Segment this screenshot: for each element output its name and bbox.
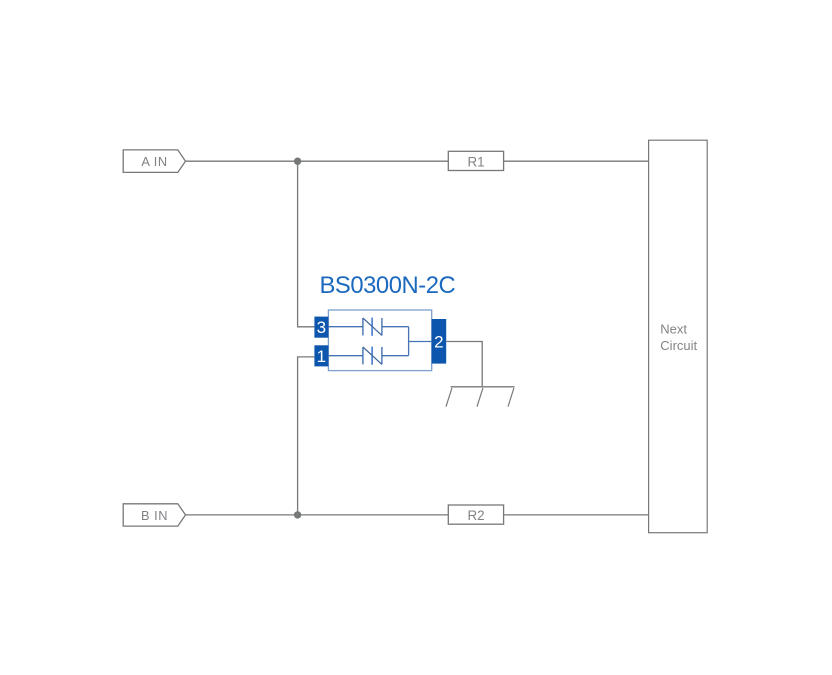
- svg-text:B IN: B IN: [141, 508, 168, 523]
- svg-text:2: 2: [434, 332, 443, 351]
- svg-text:R2: R2: [467, 508, 484, 523]
- svg-text:R1: R1: [467, 155, 484, 170]
- svg-text:1: 1: [317, 347, 326, 366]
- svg-text:3: 3: [317, 318, 326, 337]
- svg-text:Next: Next: [660, 322, 687, 337]
- svg-text:Circuit: Circuit: [660, 338, 697, 353]
- svg-text:BS0300N-2C: BS0300N-2C: [320, 272, 456, 299]
- svg-text:A IN: A IN: [141, 154, 167, 169]
